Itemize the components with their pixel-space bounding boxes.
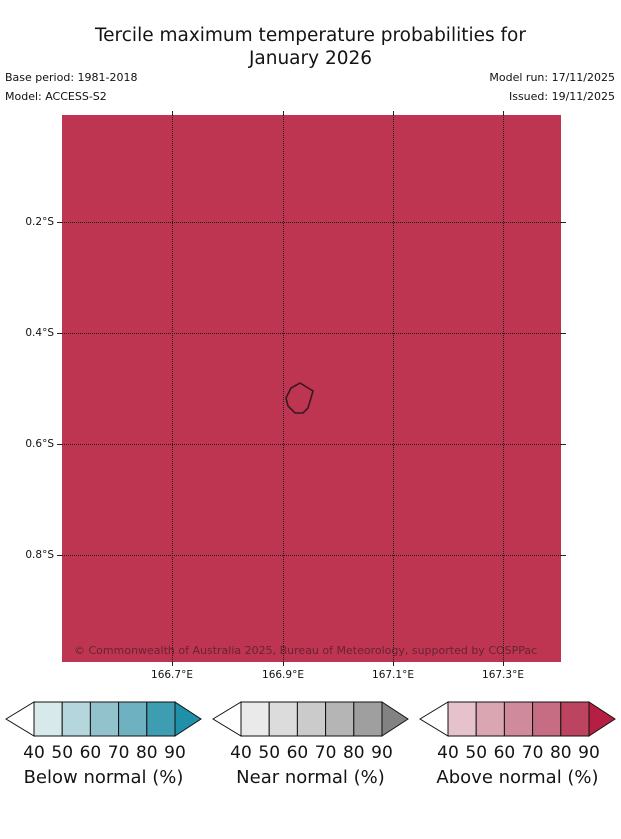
x-axis-tick-label: 167.3°E (468, 669, 538, 681)
legend-tick-label: 70 (107, 743, 129, 762)
y-axis-tick-left (57, 333, 62, 334)
issued-label: Issued: 19/11/2025 (489, 88, 615, 107)
legend-tick-label: 60 (79, 743, 101, 762)
legend-above-normal-colorbar-slot: 405060708090 (418, 701, 618, 766)
legend-color-segment (118, 702, 146, 736)
legend-color-segment (532, 702, 560, 736)
legend-tick-label: 50 (51, 743, 73, 762)
legend-above-normal: 405060708090 Above normal (%) (414, 701, 621, 788)
legend-colorbar: 405060708090 (418, 701, 618, 762)
meta-left: Base period: 1981-2018 Model: ACCESS-S2 (5, 69, 137, 106)
legend-color-segment (297, 702, 325, 736)
legend-color-segment (241, 702, 269, 736)
legend-tick-label: 90 (164, 743, 186, 762)
legend-right-arrow (175, 702, 201, 736)
island-outline (62, 115, 561, 662)
legend-colorbar: 405060708090 (211, 701, 411, 762)
legend-tick-label: 80 (342, 743, 364, 762)
model-label: Model: ACCESS-S2 (5, 88, 137, 107)
forecast-map-page: Tercile maximum temperature probabilitie… (0, 0, 621, 839)
legend-color-segment (62, 702, 90, 736)
x-axis-tick-top (393, 111, 394, 115)
legend-left-arrow (6, 702, 34, 736)
legend-tick-label: 50 (465, 743, 487, 762)
legend-right-arrow (382, 702, 408, 736)
copyright-notice: © Commonwealth of Australia 2025, Bureau… (74, 644, 537, 657)
y-axis-tick-label: 0.6°S (0, 437, 54, 451)
x-axis-tick-top (503, 111, 504, 115)
legend-tick-label: 60 (286, 743, 308, 762)
x-axis-tick-top (283, 111, 284, 115)
legend-below-normal: 405060708090 Below normal (%) (0, 701, 207, 788)
legend-color-segment (476, 702, 504, 736)
page-title-line1: Tercile maximum temperature probabilitie… (0, 24, 621, 47)
x-axis-tick-bottom (172, 662, 173, 666)
legend-color-segment (560, 702, 588, 736)
legend-color-segment (34, 702, 62, 736)
legend-color-segment (353, 702, 381, 736)
legend-tick-label: 40 (23, 743, 45, 762)
legend-tick-label: 60 (493, 743, 515, 762)
legend-left-arrow (213, 702, 241, 736)
legend-tick-label: 40 (437, 743, 459, 762)
x-axis-tick-bottom (283, 662, 284, 666)
legend-near-normal-colorbar-slot: 405060708090 (211, 701, 411, 766)
legend-tick-label: 90 (578, 743, 600, 762)
legend-color-segment (448, 702, 476, 736)
legend-tick-label: 70 (521, 743, 543, 762)
x-axis-tick-bottom (393, 662, 394, 666)
x-axis-tick-bottom (503, 662, 504, 666)
legend-color-segment (504, 702, 532, 736)
legend-above-normal-title: Above normal (%) (436, 767, 598, 788)
legend-below-normal-colorbar-slot: 405060708090 (4, 701, 204, 766)
legend-color-segment (325, 702, 353, 736)
legend-left-arrow (420, 702, 448, 736)
legend-tick-label: 50 (258, 743, 280, 762)
y-axis-tick-right (561, 222, 566, 223)
y-axis-tick-label: 0.2°S (0, 215, 54, 229)
legend-tick-label: 40 (230, 743, 252, 762)
base-period-label: Base period: 1981-2018 (5, 69, 137, 88)
y-axis-tick-right (561, 444, 566, 445)
legend-near-normal-title: Near normal (%) (236, 767, 385, 788)
y-axis-tick-label: 0.8°S (0, 548, 54, 562)
legend-tick-label: 70 (314, 743, 336, 762)
legend-row: 405060708090 Below normal (%) 4050607080… (0, 701, 621, 788)
page-title-line2: January 2026 (0, 47, 621, 70)
x-axis-tick-label: 166.9°E (248, 669, 318, 681)
y-axis-tick-left (57, 444, 62, 445)
map-canvas: © Commonwealth of Australia 2025, Bureau… (62, 115, 561, 662)
legend-color-segment (146, 702, 174, 736)
y-axis-tick-right (561, 333, 566, 334)
y-axis-tick-right (561, 555, 566, 556)
y-axis-tick-left (57, 555, 62, 556)
legend-tick-label: 80 (135, 743, 157, 762)
legend-colorbar: 405060708090 (4, 701, 204, 762)
legend-tick-label: 90 (371, 743, 393, 762)
legend-color-segment (90, 702, 118, 736)
meta-right: Model run: 17/11/2025 Issued: 19/11/2025 (489, 69, 615, 106)
legend-below-normal-title: Below normal (%) (24, 767, 184, 788)
legend-color-segment (269, 702, 297, 736)
x-axis-tick-label: 167.1°E (358, 669, 428, 681)
y-axis-tick-left (57, 222, 62, 223)
legend-right-arrow (589, 702, 615, 736)
model-run-label: Model run: 17/11/2025 (489, 69, 615, 88)
x-axis-tick-top (172, 111, 173, 115)
page-title: Tercile maximum temperature probabilitie… (0, 24, 621, 70)
island-outline-polygon (286, 383, 313, 413)
legend-tick-label: 80 (549, 743, 571, 762)
x-axis-tick-label: 166.7°E (137, 669, 207, 681)
legend-near-normal: 405060708090 Near normal (%) (207, 701, 414, 788)
y-axis-tick-label: 0.4°S (0, 326, 54, 340)
